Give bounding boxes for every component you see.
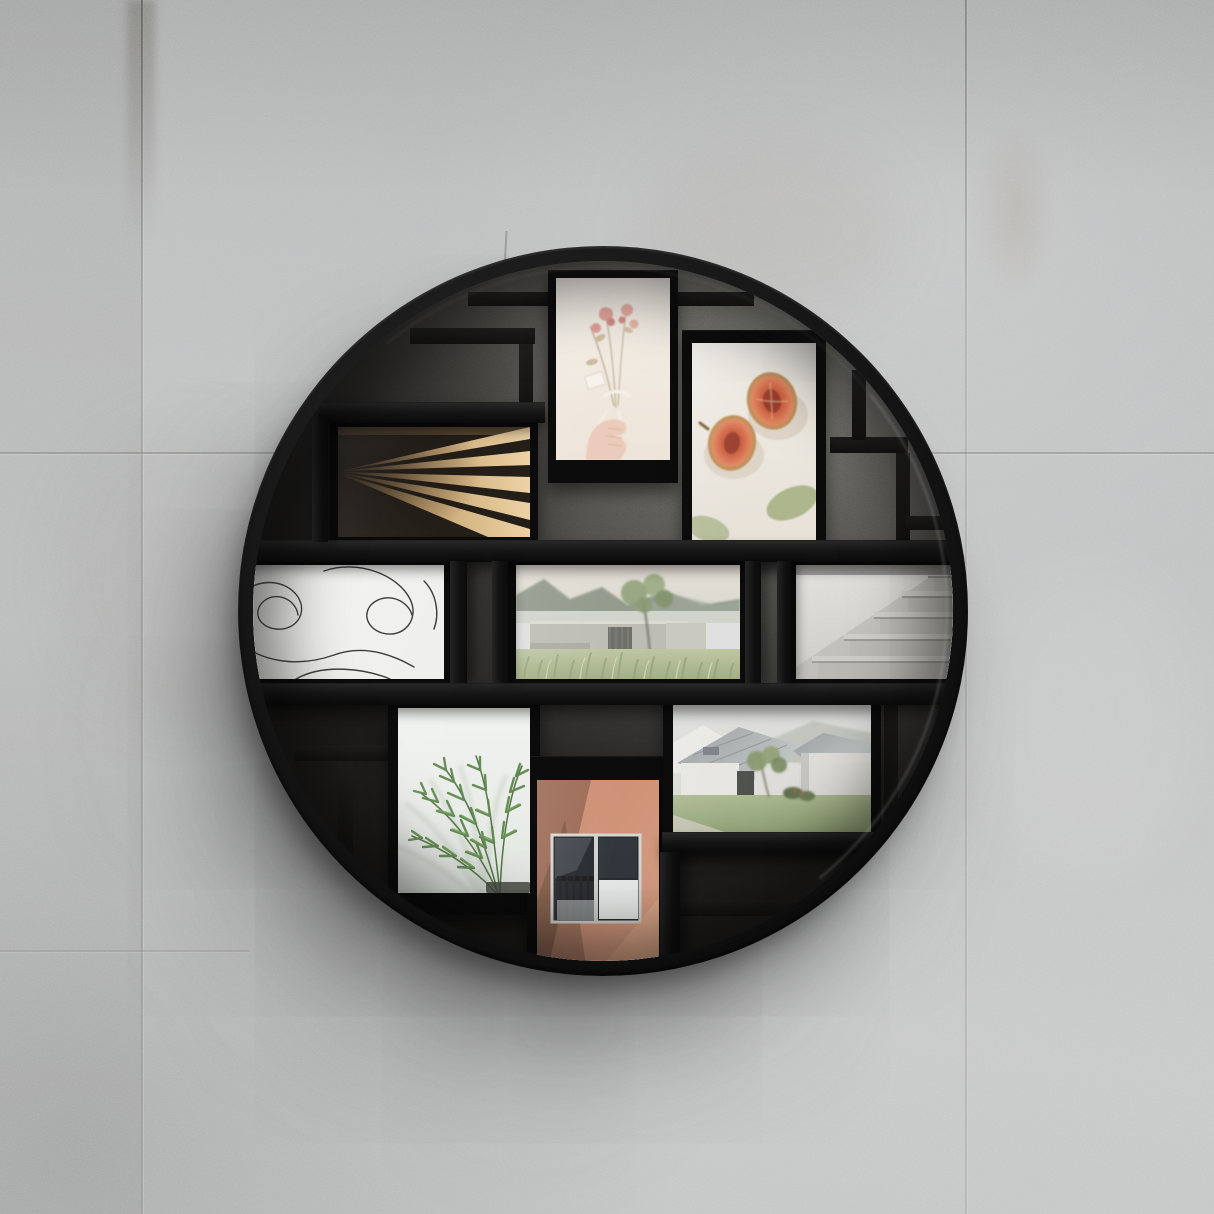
wall-left-panel-shade [0,0,142,1214]
wall-stain-right [975,125,1055,295]
wall-blotch [980,560,1200,880]
product-photo-scene [0,0,1214,1214]
frame-interior [253,261,953,961]
wall-seam-horizontal-faint [0,950,250,952]
collage-frame-circle [238,246,968,976]
wall-seam-vertical-left [141,0,143,1214]
wall-stain-seam-top [127,0,155,238]
